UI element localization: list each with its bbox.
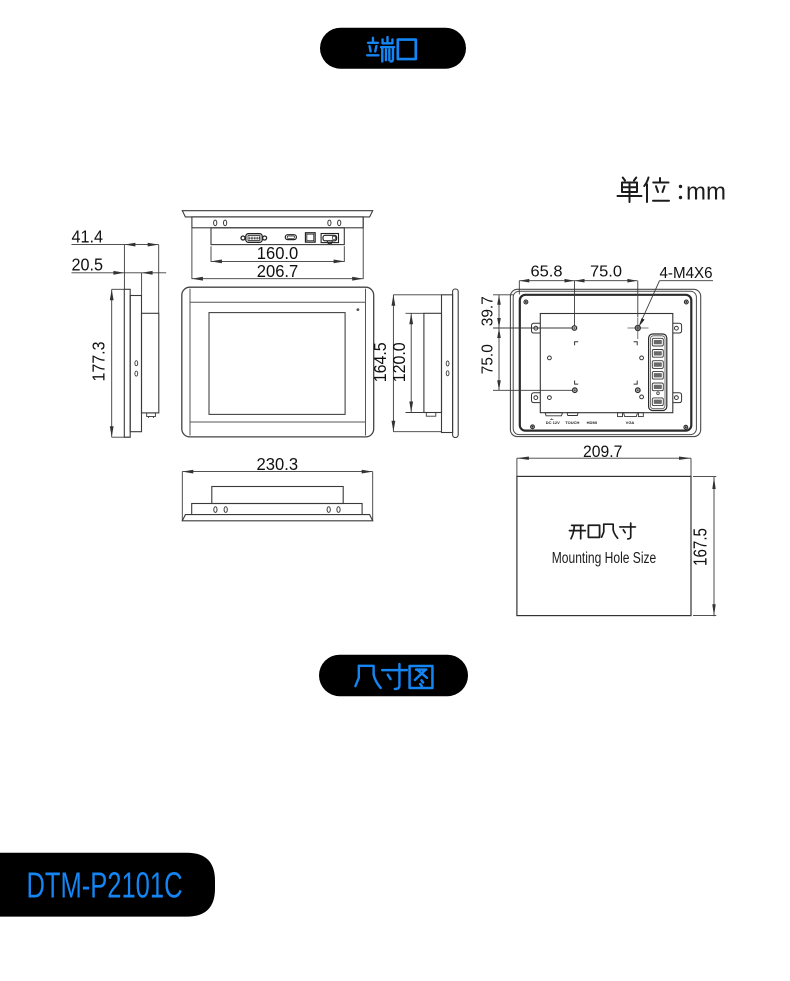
svg-text:39.7: 39.7: [480, 296, 497, 326]
svg-text:TOUCH: TOUCH: [565, 420, 579, 425]
svg-text:Mounting Hole Size: Mounting Hole Size: [552, 550, 657, 567]
svg-text:167.5: 167.5: [690, 528, 710, 566]
svg-text:4-M4X6: 4-M4X6: [660, 265, 713, 282]
svg-text:75.0: 75.0: [590, 264, 622, 281]
svg-text:DTM-P2101C: DTM-P2101C: [27, 865, 183, 906]
svg-text:HDMI: HDMI: [587, 420, 597, 425]
svg-text:41.4: 41.4: [72, 226, 104, 246]
svg-text:65.8: 65.8: [531, 264, 563, 281]
svg-text:206.7: 206.7: [257, 261, 299, 281]
svg-text:164.5: 164.5: [370, 342, 390, 382]
svg-text:75.0: 75.0: [480, 344, 497, 374]
svg-text:177.3: 177.3: [89, 342, 109, 382]
svg-text:120.0: 120.0: [389, 342, 409, 382]
svg-text:20.5: 20.5: [72, 255, 104, 275]
svg-text:mm: mm: [686, 179, 726, 206]
svg-text:DC 12V: DC 12V: [546, 420, 560, 425]
svg-text:VGA: VGA: [626, 420, 635, 425]
